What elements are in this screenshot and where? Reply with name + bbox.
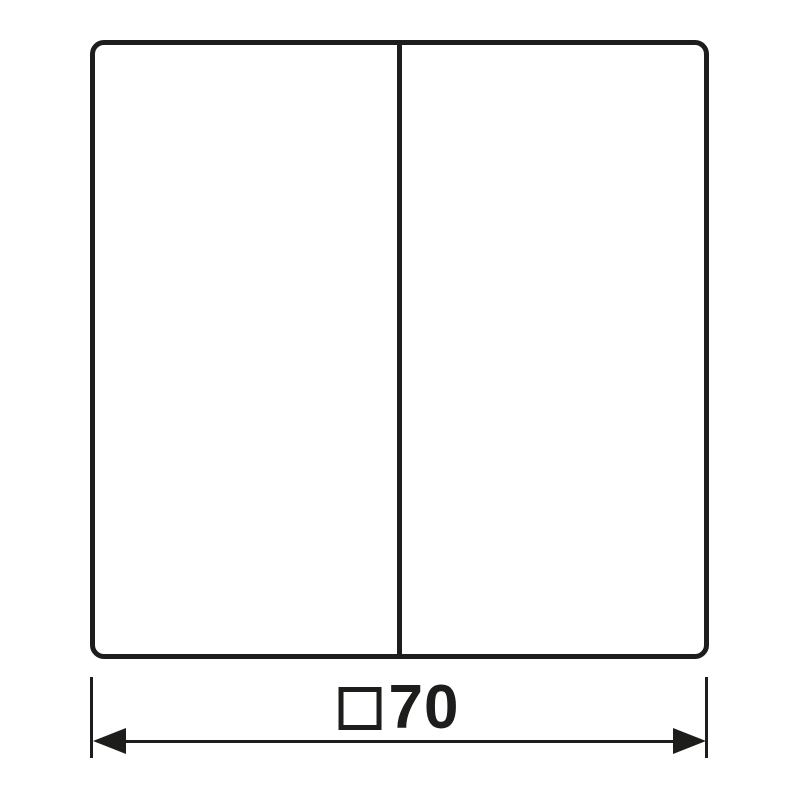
arrowhead-left-icon <box>93 728 126 754</box>
arrowhead-right-icon <box>673 728 706 754</box>
dimension-label: 70 <box>339 684 460 732</box>
rocker-divider-line <box>397 43 402 656</box>
square-symbol-icon <box>339 687 382 730</box>
drawing-canvas: 70 <box>0 0 800 800</box>
dimension-value: 70 <box>389 684 460 732</box>
